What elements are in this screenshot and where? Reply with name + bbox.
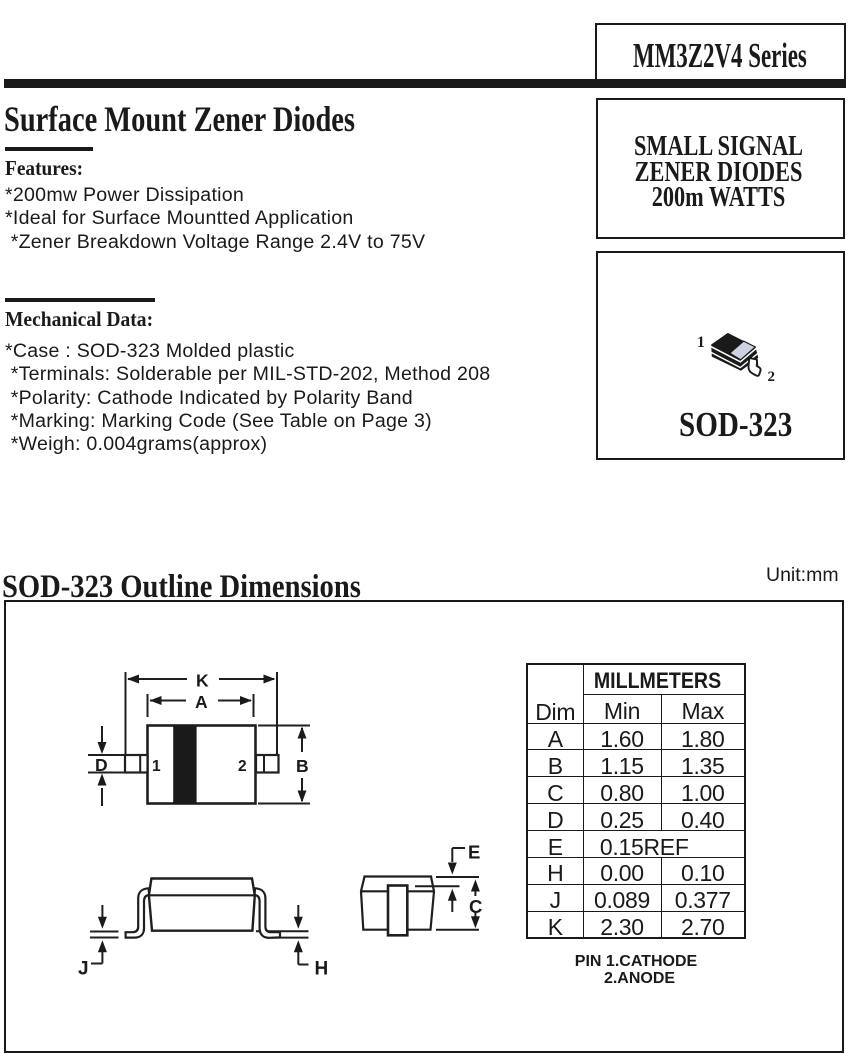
svg-text:A: A (195, 692, 208, 712)
svg-text:C: C (469, 896, 482, 917)
svg-text:K: K (196, 671, 209, 691)
svg-text:E: E (468, 842, 480, 863)
svg-text:J: J (78, 959, 89, 980)
svg-text:H: H (315, 959, 329, 980)
svg-text:2: 2 (238, 758, 247, 775)
svg-text:B: B (296, 756, 309, 776)
svg-text:D: D (95, 755, 108, 775)
svg-text:1: 1 (152, 758, 161, 775)
